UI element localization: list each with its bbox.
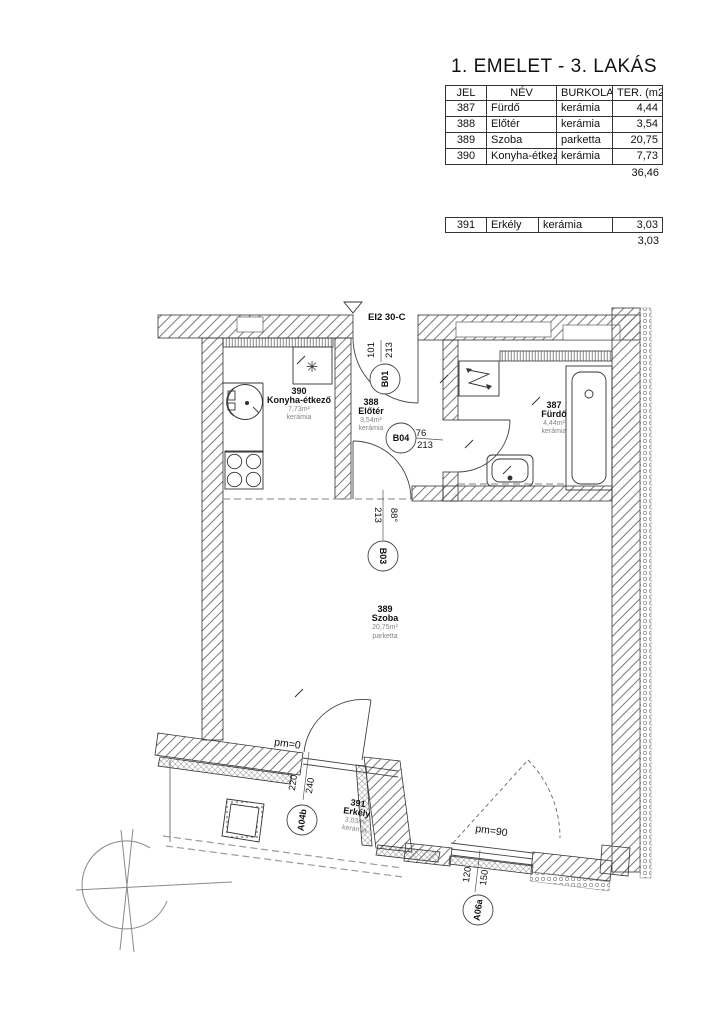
dim-text: 213 (384, 342, 395, 358)
table-cell: 3,54 (613, 117, 663, 133)
balcony-table: 391 Erkély kerámia 3,03 3,03 (445, 217, 663, 249)
table-cell: 20,75 (613, 133, 663, 149)
dimension-b03: 213 88° B03 (368, 490, 399, 571)
dimension-b01: 101 213 B01 (366, 340, 400, 394)
svg-text:20,75m²: 20,75m² (372, 624, 398, 631)
sheet-title: 1. EMELET - 3. LAKÁS (445, 56, 663, 78)
table-cell: Erkély (487, 217, 539, 233)
floor-plan-sheet: 1. EMELET - 3. LAKÁS JEL NÉV BURKOLAT TE… (0, 0, 725, 1024)
svg-text:kerámia: kerámia (542, 428, 567, 435)
area-table: JEL NÉV BURKOLAT TER. (m2) 387 Fürdő ker… (445, 85, 663, 181)
door-marker: B04 (393, 433, 410, 443)
door-marker: B03 (378, 548, 388, 565)
table-cell: 391 (445, 217, 487, 233)
dim-text: 120 (461, 866, 474, 883)
dimension-b04: 76 213 B04 (386, 423, 443, 453)
dim-text: 150 (478, 869, 491, 886)
table-cell: Konyha-étkező (487, 149, 557, 165)
room-label-konyha: 390 Konyha-étkező 7,73m² kerámia (267, 386, 332, 421)
table-cell: 3,03 (613, 217, 663, 233)
spacer (487, 233, 539, 249)
table-cell: 4,44 (613, 101, 663, 117)
bathroom-fixtures (459, 361, 612, 490)
room-label-szoba: 389 Szoba 20,75m² parketta (372, 604, 399, 640)
dim-text: 88° (388, 508, 399, 523)
spacer (557, 165, 613, 181)
table-cell: Szoba (487, 133, 557, 149)
spacer (539, 233, 613, 249)
door-b04 (458, 420, 510, 472)
table-cell: kerámia (557, 101, 613, 117)
dim-text: 240 (304, 777, 317, 794)
table-cell: kerámia (557, 149, 613, 165)
svg-text:Előtér: Előtér (358, 406, 384, 416)
washing-machine-icon (459, 361, 499, 396)
dim-text: 213 (372, 507, 383, 523)
table-cell: 390 (445, 149, 487, 165)
svg-text:parketta: parketta (372, 633, 397, 640)
room-label-eloter: 388 Előtér 3,54m² kerámia (358, 397, 384, 432)
title-block: 1. EMELET - 3. LAKÁS JEL NÉV BURKOLAT TE… (445, 56, 663, 249)
bath-sink-icon (487, 455, 533, 486)
dimension-a06a: pm=90 120 150 A06a (461, 823, 508, 925)
svg-text:3,54m²: 3,54m² (360, 417, 382, 424)
door-marker: B01 (380, 371, 390, 388)
table-cell: 388 (445, 117, 487, 133)
stove-icon (225, 451, 263, 489)
col-header-jel: JEL (445, 85, 487, 101)
table-cell: Előtér (487, 117, 557, 133)
col-header-ter: TER. (m2) (613, 85, 663, 101)
dim-text: 220 (287, 774, 300, 791)
bathtub-icon (566, 366, 612, 490)
area-total: 36,46 (613, 165, 663, 181)
table-cell: 389 (445, 133, 487, 149)
svg-text:kerámia: kerámia (287, 414, 312, 421)
table-cell: kerámia (557, 117, 613, 133)
col-header-burkolat: BURKOLAT (557, 85, 613, 101)
dim-text: 213 (417, 440, 433, 451)
balcony-pillar-icon (222, 799, 264, 842)
table-cell: Fürdő (487, 101, 557, 117)
dim-text: 76 (416, 428, 427, 439)
dim-text: 101 (366, 342, 377, 358)
table-cell: kerámia (539, 217, 613, 233)
table-cell: parketta (557, 133, 613, 149)
spacer (445, 165, 487, 181)
fridge-symbol: ✳ (306, 359, 319, 376)
balcony-total: 3,03 (613, 233, 663, 249)
compass-icon (76, 829, 232, 952)
col-header-nev: NÉV (487, 85, 557, 101)
svg-text:Fürdő: Fürdő (541, 409, 567, 419)
svg-text:Konyha-étkező: Konyha-étkező (267, 395, 332, 405)
svg-text:Szoba: Szoba (372, 613, 399, 623)
svg-text:7,73m²: 7,73m² (288, 406, 310, 413)
svg-text:kerámia: kerámia (359, 425, 384, 432)
room-label-furdo: 387 Fürdő 4,44m² kerámia (541, 400, 567, 435)
tick-marks (295, 356, 540, 697)
entrance-label: EI2 30-C (368, 312, 406, 323)
sink-icon (227, 385, 263, 420)
spacer (445, 233, 487, 249)
table-cell: 387 (445, 101, 487, 117)
table-cell: 7,73 (613, 149, 663, 165)
pm-label: pm=90 (475, 823, 509, 839)
entrance-triangle-icon (344, 302, 362, 313)
spacer (487, 165, 557, 181)
svg-text:4,44m²: 4,44m² (543, 420, 565, 427)
